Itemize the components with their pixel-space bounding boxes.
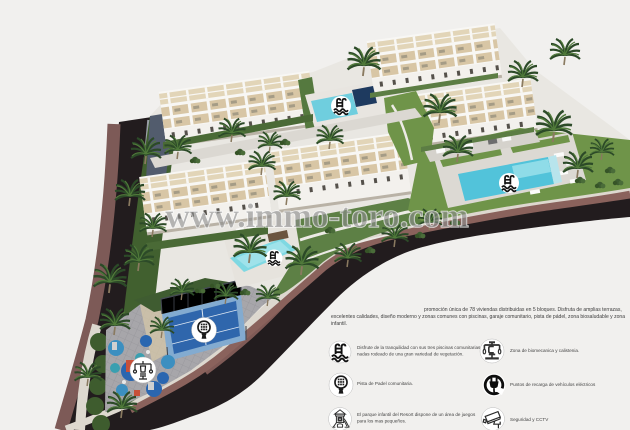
svg-text:infantil.: infantil. <box>331 321 347 327</box>
svg-text:para los mas pequeños.: para los mas pequeños. <box>357 419 406 424</box>
svg-text:El parque infantil del Resort: El parque infantil del Resort dispone de… <box>357 412 476 417</box>
svg-text:www.immo-toro.com: www.immo-toro.com <box>165 198 468 235</box>
svg-text:Puntos de recarga de vehículos: Puntos de recarga de vehículos eléctrico… <box>510 382 596 387</box>
svg-text:Zona de biomecanica y calisten: Zona de biomecanica y calistenia. <box>510 348 579 353</box>
svg-text:nadas rodeado de una gran vari: nadas rodeado de una gran variedad de ve… <box>357 352 464 357</box>
svg-text:excelentes calidades, diseño m: excelentes calidades, diseño moderno y z… <box>331 314 625 320</box>
svg-text:Disfrute de la tranquilidad co: Disfrute de la tranquilidad con sus tres… <box>357 345 495 350</box>
svg-text:Pista de Padel comunitaria.: Pista de Padel comunitaria. <box>357 381 413 386</box>
svg-text:promoción única de 78 vivienda: promoción única de 78 viviendas distribu… <box>424 307 622 313</box>
svg-text:Seguridad y CCTV: Seguridad y CCTV <box>510 417 549 422</box>
